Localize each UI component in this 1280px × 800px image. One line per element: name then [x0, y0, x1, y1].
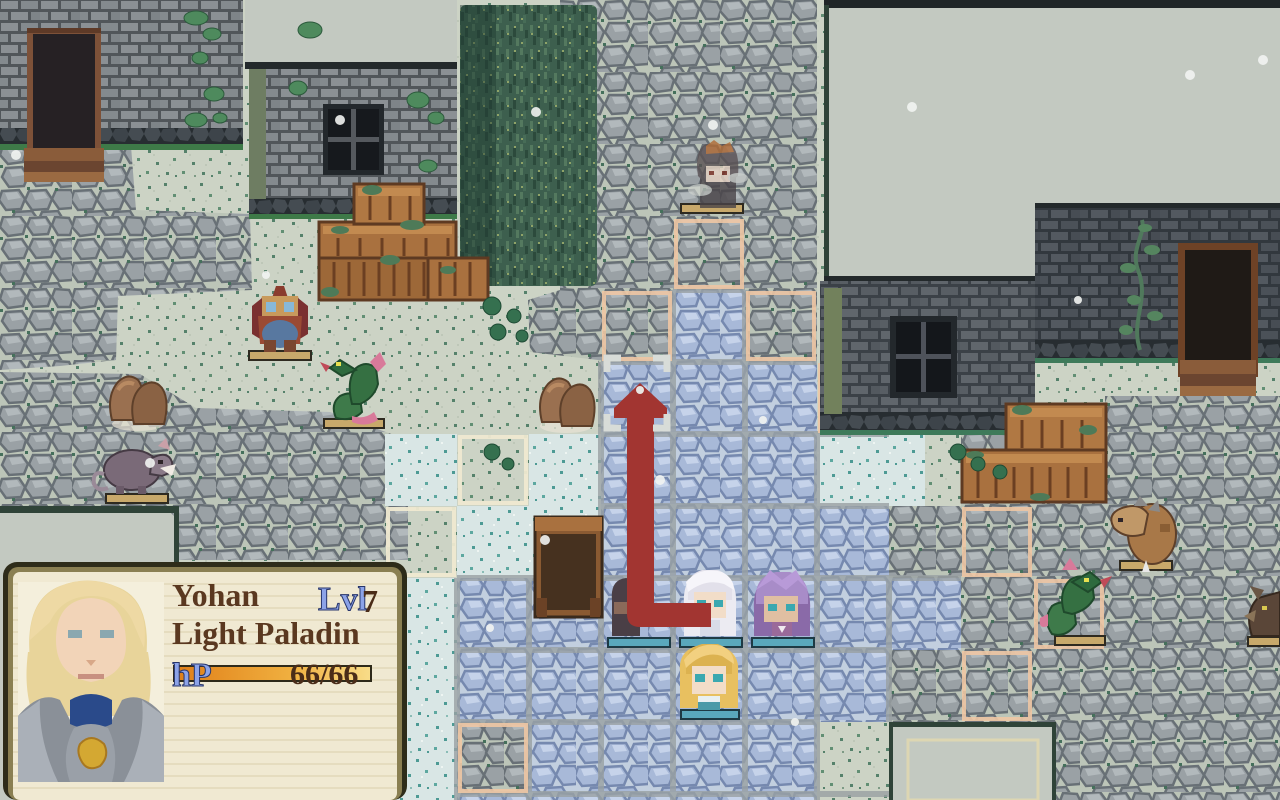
svg-text:hP: hP — [172, 657, 212, 694]
svg-text:7: 7 — [362, 583, 378, 619]
svg-text:Light Paladin: Light Paladin — [172, 615, 360, 651]
svg-text:Lvl: Lvl — [318, 581, 367, 618]
svg-text:66/66: 66/66 — [290, 658, 358, 691]
svg-text:Yohan: Yohan — [172, 577, 259, 613]
